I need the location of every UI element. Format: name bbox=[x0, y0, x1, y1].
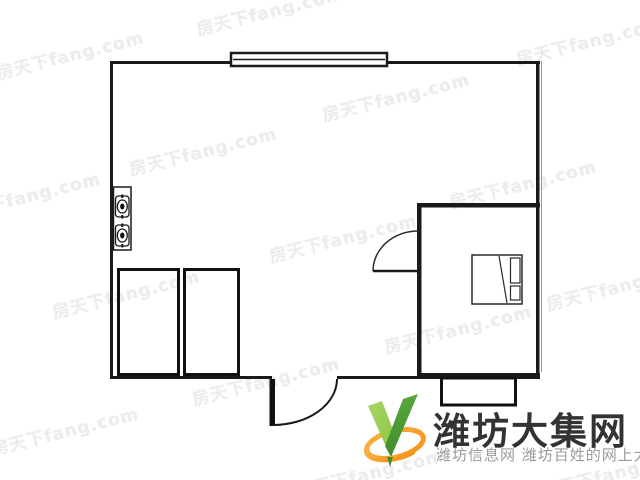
gas-burner-icon bbox=[116, 195, 130, 219]
bedroom-door bbox=[373, 231, 418, 271]
window-top bbox=[231, 53, 387, 66]
bedroom-wall-top bbox=[418, 203, 540, 208]
wardrobe-left bbox=[119, 270, 179, 375]
bedroom-door-arc bbox=[373, 231, 418, 271]
wall-bottom-left-segment bbox=[110, 376, 272, 379]
wall-right-inner-line bbox=[541, 61, 542, 372]
bedroom-wall-left bbox=[417, 203, 422, 379]
bed bbox=[472, 255, 522, 304]
entry-door-arc bbox=[273, 379, 337, 425]
logo-subtitle: 潍坊信息网 潍坊百姓的网上大集 bbox=[436, 444, 640, 465]
entry-door-leaf bbox=[270, 379, 276, 426]
bed-pillow-top bbox=[511, 258, 521, 283]
stove bbox=[114, 187, 132, 250]
wardrobe-right bbox=[185, 270, 239, 375]
wall-right bbox=[536, 61, 540, 377]
gas-burner-icon bbox=[116, 224, 130, 248]
bed-blanket-fold bbox=[499, 256, 507, 303]
entry-door bbox=[270, 379, 338, 426]
logo-checkmark-icon bbox=[358, 391, 434, 471]
wall-left bbox=[110, 61, 113, 379]
bed-pillow-bottom bbox=[511, 286, 521, 300]
floorplan-image: 房天下fang.com房天下fang.com房天下fang.com房天下fang… bbox=[0, 0, 640, 480]
bed-frame bbox=[472, 255, 522, 304]
